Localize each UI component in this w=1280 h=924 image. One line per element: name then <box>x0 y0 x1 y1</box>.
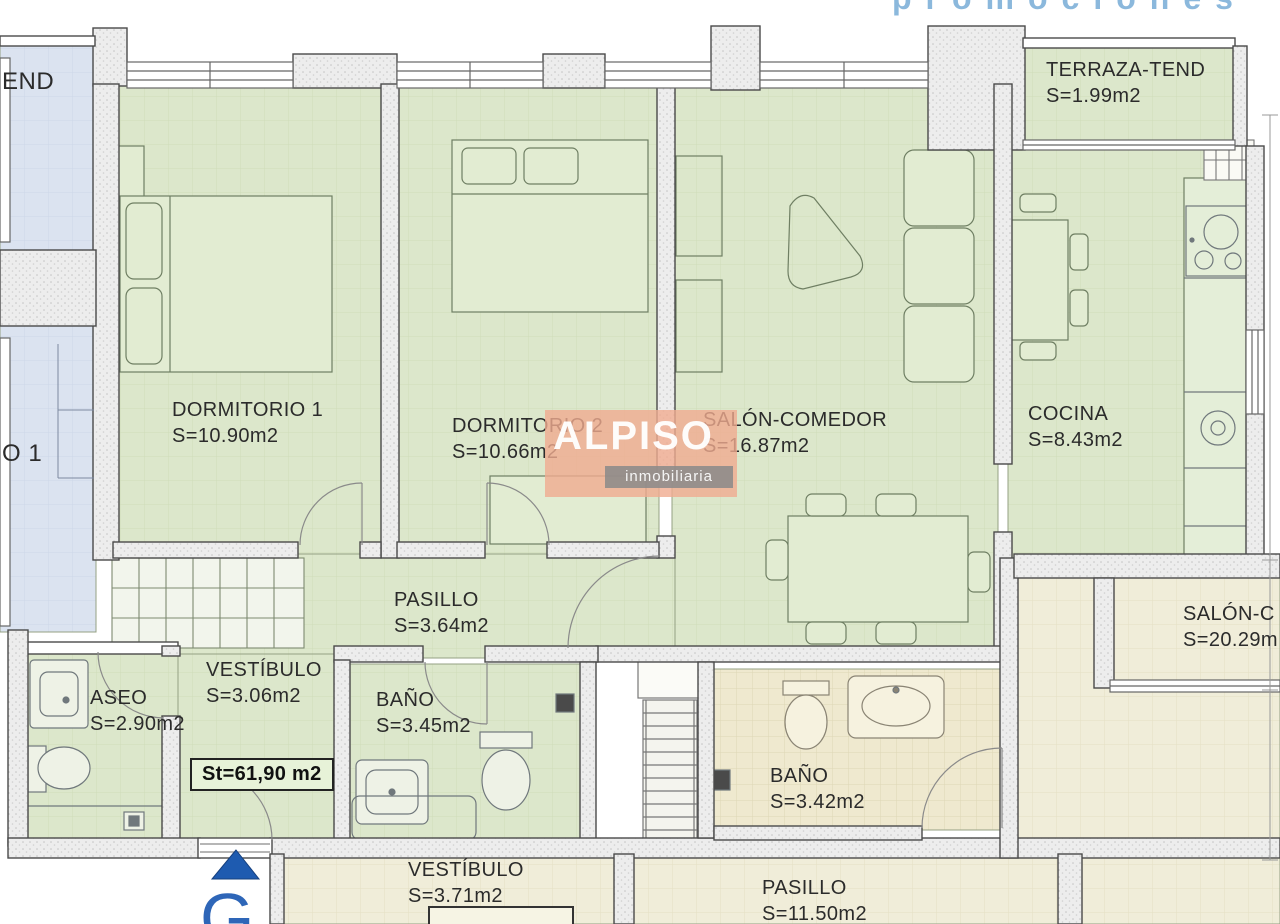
room-label-adjacent-vestibulo: VESTÍBULO S=3.71m2 <box>408 858 524 909</box>
promo-header-text: promociones <box>892 0 1247 17</box>
toilet <box>38 747 90 789</box>
window <box>0 338 10 626</box>
room-name: PASILLO <box>762 876 867 902</box>
partial-total-box <box>428 906 574 924</box>
room-name: BAÑO <box>376 688 471 714</box>
toilet <box>482 750 530 810</box>
toilet-tank <box>480 732 532 748</box>
watermark-brand: ALPISO <box>553 414 714 459</box>
room-label-adjacent-salon: SALÓN-C S=20.29m <box>1183 602 1278 653</box>
room-area: S=3.42m2 <box>770 790 865 816</box>
room-label-cocina: COCINA S=8.43m2 <box>1028 402 1123 453</box>
chair <box>1020 342 1056 360</box>
room-label-adjacent-bano: BAÑO S=3.42m2 <box>770 764 865 815</box>
sofa-module <box>904 150 974 226</box>
label-fragment-adjacent-terraza: END <box>2 68 54 96</box>
room-area: S=8.43m2 <box>1028 428 1123 454</box>
room-label-vestibulo: VESTÍBULO S=3.06m2 <box>206 658 322 709</box>
washbasin <box>30 660 88 728</box>
chair <box>968 552 990 592</box>
window <box>605 62 711 88</box>
room-name: BAÑO <box>770 764 865 790</box>
wardrobe-grid <box>112 558 304 648</box>
vent <box>556 694 574 712</box>
room-name: ASEO <box>90 686 185 712</box>
dining-table <box>788 516 968 622</box>
room-label-pasillo: PASILLO S=3.64m2 <box>394 588 489 639</box>
chair <box>806 494 846 516</box>
chair <box>1020 194 1056 212</box>
toilet-tank <box>783 681 829 695</box>
room-adjacent-dormitorio <box>0 326 96 632</box>
chair <box>876 494 916 516</box>
chair <box>876 622 916 644</box>
watermark-subtitle: inmobiliaria <box>605 466 733 488</box>
room-label-terraza: TERRAZA-TEND S=1.99m2 <box>1046 58 1205 109</box>
window <box>1246 330 1264 414</box>
room-name: VESTÍBULO <box>206 658 322 684</box>
room-label-bano: BAÑO S=3.45m2 <box>376 688 471 739</box>
room-name: VESTÍBULO <box>408 858 524 884</box>
room-name: SALÓN-C <box>1183 602 1278 628</box>
room-area: S=3.45m2 <box>376 714 471 740</box>
duct <box>638 658 700 698</box>
room-area: S=3.06m2 <box>206 684 322 710</box>
entrance-letter: G <box>200 878 254 924</box>
floor-plan-page: promociones TERRAZA-TEND S=1.99m2 DORMIT… <box>0 0 1280 924</box>
room-area: S=10.90m2 <box>172 424 323 450</box>
pillow <box>524 148 578 184</box>
room-area: S=2.90m2 <box>90 712 185 738</box>
room-name: COCINA <box>1028 402 1123 428</box>
room-area: S=1.99m2 <box>1046 84 1205 110</box>
label-fragment-adjacent-dormitorio: O 1 <box>2 440 42 468</box>
room-name: TERRAZA-TEND <box>1046 58 1205 84</box>
room-name: PASILLO <box>394 588 489 614</box>
room-label-adjacent-pasillo: PASILLO S=11.50m2 <box>762 876 867 924</box>
chair <box>1070 234 1088 270</box>
room-area: S=3.64m2 <box>394 614 489 640</box>
shaft <box>638 658 700 844</box>
kitchen-counter <box>1184 178 1248 560</box>
room-label-dormitorio-1: DORMITORIO 1 S=10.90m2 <box>172 398 323 449</box>
sofa-module <box>904 306 974 382</box>
pillow <box>126 288 162 364</box>
chair <box>806 622 846 644</box>
watermark: ALPISO inmobiliaria <box>545 410 737 497</box>
toilet <box>785 695 827 749</box>
room-area: S=20.29m <box>1183 628 1278 654</box>
chair <box>1070 290 1088 326</box>
pillow <box>126 203 162 279</box>
room-label-aseo: ASEO S=2.90m2 <box>90 686 185 737</box>
sofa-module <box>904 228 974 304</box>
room-area: S=11.50m2 <box>762 902 867 924</box>
total-area-box: St=61,90 m2 <box>190 758 334 791</box>
pillow <box>462 148 516 184</box>
chair <box>766 540 788 580</box>
room-name: DORMITORIO 1 <box>172 398 323 424</box>
